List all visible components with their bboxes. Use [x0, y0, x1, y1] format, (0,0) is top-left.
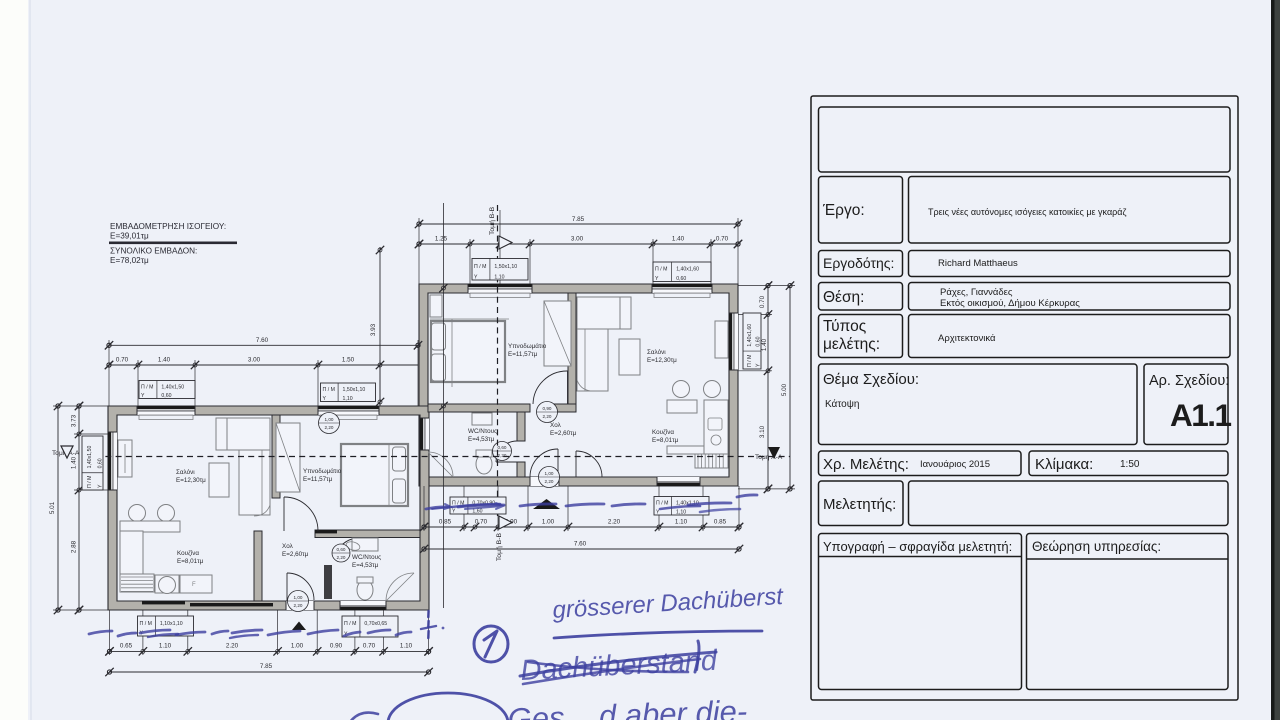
- svg-text:0.70: 0.70: [116, 357, 129, 364]
- svg-text:1.40: 1.40: [672, 236, 685, 243]
- svg-text:Υπογραφή – σφραγίδα μελετητή:: Υπογραφή – σφραγίδα μελετητή:: [823, 539, 1012, 554]
- svg-text:0.70: 0.70: [475, 519, 488, 526]
- svg-text:0,70x0,65: 0,70x0,65: [364, 621, 387, 627]
- svg-text:Έργο:: Έργο:: [822, 202, 865, 219]
- svg-text:Υ: Υ: [756, 363, 762, 367]
- svg-text:Υ: Υ: [655, 276, 659, 282]
- svg-text:Ε=2,60τμ: Ε=2,60τμ: [550, 430, 577, 437]
- svg-text:Υ: Υ: [474, 274, 478, 280]
- svg-text:0.70: 0.70: [363, 643, 376, 650]
- svg-text:1.50: 1.50: [342, 357, 355, 364]
- svg-text:Π / Μ: Π / Μ: [323, 387, 335, 393]
- svg-text:0.85: 0.85: [439, 519, 452, 526]
- svg-text:2,20: 2,20: [337, 555, 346, 560]
- svg-text:Κουζίνα: Κουζίνα: [177, 549, 199, 557]
- svg-text:Ιανουάριος 2015: Ιανουάριος 2015: [920, 459, 990, 470]
- svg-text:Τύπος: Τύπος: [823, 318, 866, 335]
- svg-text:Υ: Υ: [656, 510, 660, 516]
- svg-text:1,10x1,10: 1,10x1,10: [160, 621, 183, 627]
- svg-text:1,00: 1,00: [545, 471, 554, 476]
- svg-text:1,00: 1,00: [294, 595, 303, 600]
- svg-text:1,40x1,60: 1,40x1,60: [676, 267, 699, 273]
- svg-text:Σαλόνι: Σαλόνι: [647, 348, 666, 356]
- svg-text:0,60: 0,60: [337, 547, 346, 552]
- svg-text:2,20: 2,20: [545, 479, 554, 484]
- svg-text:2.88: 2.88: [71, 540, 78, 553]
- svg-text:ΣΥΝΟΛΙΚΟ ΕΜΒΑΔΟΝ:: ΣΥΝΟΛΙΚΟ ΕΜΒΑΔΟΝ:: [110, 247, 197, 256]
- svg-text:2,20: 2,20: [498, 453, 507, 458]
- svg-text:Αρχιτεκτονικά: Αρχιτεκτονικά: [938, 333, 996, 344]
- svg-text:Π / Μ: Π / Μ: [656, 501, 668, 507]
- svg-text:Ε=4,53τμ: Ε=4,53τμ: [468, 436, 495, 443]
- svg-text:1,60: 1,60: [472, 509, 482, 515]
- svg-text:Ε=12,30τμ: Ε=12,30τμ: [176, 477, 206, 484]
- svg-text:Εργοδότης:: Εργοδότης:: [823, 255, 894, 271]
- svg-text:3.93: 3.93: [370, 323, 377, 336]
- svg-text:Τομή B-B: Τομή B-B: [496, 533, 503, 562]
- svg-text:Υ: Υ: [323, 396, 327, 402]
- svg-text:0,60: 0,60: [161, 393, 171, 399]
- svg-text:0.70: 0.70: [716, 236, 729, 243]
- svg-text:1,00: 1,00: [325, 417, 334, 422]
- svg-text:Π / Μ: Π / Μ: [87, 476, 93, 488]
- svg-text:1,50x1,10: 1,50x1,10: [494, 264, 517, 270]
- svg-text:Ε=39,01τμ: Ε=39,01τμ: [110, 232, 149, 241]
- svg-text:Υ: Υ: [452, 509, 456, 515]
- svg-text:Τομή A-A: Τομή A-A: [755, 454, 783, 461]
- svg-text:Κάτοψη: Κάτοψη: [825, 398, 859, 410]
- svg-text:7.85: 7.85: [572, 216, 585, 223]
- svg-text:Π / Μ: Π / Μ: [474, 264, 486, 270]
- svg-text:0.65: 0.65: [120, 643, 133, 650]
- svg-text:3.73: 3.73: [71, 414, 78, 427]
- svg-text:1,40x1,60: 1,40x1,60: [747, 324, 753, 347]
- svg-text:Ε=8,01τμ: Ε=8,01τμ: [652, 437, 679, 444]
- svg-text:Σαλόνι: Σαλόνι: [176, 468, 195, 476]
- svg-text:Θέμα Σχεδίου:: Θέμα Σχεδίου:: [823, 371, 919, 388]
- svg-text:3.00: 3.00: [571, 236, 584, 243]
- svg-text:Ε=11,57τμ: Ε=11,57τμ: [508, 351, 538, 358]
- svg-text:A1.1: A1.1: [1170, 397, 1232, 433]
- svg-text:WC/Ντους: WC/Ντους: [468, 428, 497, 435]
- svg-text:1,10: 1,10: [494, 274, 504, 280]
- svg-text:7.60: 7.60: [256, 337, 269, 344]
- svg-text:WC/Ντους: WC/Ντους: [352, 554, 381, 561]
- svg-text:2,20: 2,20: [294, 603, 303, 608]
- svg-text:7.60: 7.60: [574, 541, 587, 548]
- svg-text:1,50x1,10: 1,50x1,10: [343, 387, 366, 393]
- svg-text:Π / Μ: Π / Μ: [655, 267, 667, 273]
- svg-text:ΕΜΒΑΔΟΜΕΤΡΗΣΗ ΙΣΟΓΕΙΟΥ:: ΕΜΒΑΔΟΜΕΤΡΗΣΗ ΙΣΟΓΕΙΟΥ:: [110, 222, 226, 231]
- svg-text:0,60: 0,60: [676, 276, 686, 282]
- svg-text:Τομή B-B: Τομή B-B: [489, 206, 496, 235]
- svg-text:1.00: 1.00: [291, 643, 304, 650]
- svg-text:0,90: 0,90: [543, 406, 552, 411]
- svg-text:0.70: 0.70: [759, 295, 766, 308]
- svg-text:1.00: 1.00: [542, 519, 555, 526]
- svg-text:F: F: [192, 582, 196, 588]
- svg-text:1.10: 1.10: [400, 643, 413, 650]
- svg-text:Υπνοδωμάτιο: Υπνοδωμάτιο: [303, 467, 342, 475]
- svg-text:Υπνοδωμάτιο: Υπνοδωμάτιο: [508, 342, 547, 350]
- svg-text:1.10: 1.10: [675, 519, 688, 526]
- svg-text:5.00: 5.00: [781, 383, 788, 396]
- svg-text:Ε=12,30τμ: Ε=12,30τμ: [647, 357, 677, 364]
- svg-text:Ε=2,60τμ: Ε=2,60τμ: [282, 551, 309, 558]
- svg-text:2,20: 2,20: [543, 414, 552, 419]
- svg-text:1.10: 1.10: [159, 643, 172, 650]
- svg-text:Π / Μ: Π / Μ: [141, 384, 153, 390]
- svg-text:0,60: 0,60: [97, 458, 103, 468]
- svg-text:Ε=11,57τμ: Ε=11,57τμ: [303, 476, 333, 483]
- svg-text:0.85: 0.85: [714, 519, 727, 526]
- svg-text:Τρεις νέες αυτόνομες ισόγειες: Τρεις νέες αυτόνομες ισόγειες κατοικίες …: [928, 207, 1126, 217]
- svg-text:Υ: Υ: [141, 393, 145, 399]
- svg-text:Richard Matthaeus: Richard Matthaeus: [938, 258, 1018, 269]
- svg-text:0,60: 0,60: [756, 336, 762, 346]
- svg-text:1,10: 1,10: [676, 510, 686, 516]
- svg-text:Μελετητής:: Μελετητής:: [823, 496, 896, 513]
- svg-text:Κλίμακα:: Κλίμακα:: [1035, 456, 1093, 473]
- svg-text:3.10: 3.10: [759, 425, 766, 438]
- svg-text:Θέση:: Θέση:: [823, 289, 864, 306]
- svg-text:Εκτός οικισμού, Δήμου Κέρκυρας: Εκτός οικισμού, Δήμου Κέρκυρας: [940, 298, 1080, 309]
- svg-text:0,60: 0,60: [498, 445, 507, 450]
- svg-text:Χολ: Χολ: [550, 422, 562, 429]
- svg-text:1.40: 1.40: [158, 357, 171, 364]
- svg-text:1.40: 1.40: [761, 338, 768, 351]
- svg-text:Π / Μ: Π / Μ: [140, 621, 152, 627]
- svg-text:1,40x1,50: 1,40x1,50: [87, 445, 93, 468]
- svg-text:2.20: 2.20: [226, 643, 239, 650]
- svg-text:Χολ: Χολ: [282, 543, 294, 550]
- svg-text:Χρ. Μελέτης:: Χρ. Μελέτης:: [823, 456, 909, 473]
- svg-text:Θεώρηση υπηρεσίας:: Θεώρηση υπηρεσίας:: [1032, 539, 1161, 554]
- svg-text:2,20: 2,20: [325, 425, 334, 430]
- svg-text:1.25: 1.25: [435, 236, 448, 243]
- svg-text:Υ: Υ: [97, 484, 103, 488]
- svg-text:1,10: 1,10: [343, 396, 353, 402]
- svg-text:Κουζίνα: Κουζίνα: [652, 428, 674, 436]
- svg-text:Ε=4,53τμ: Ε=4,53τμ: [352, 562, 379, 569]
- svg-text:1,40x1,50: 1,40x1,50: [161, 384, 184, 390]
- svg-text:7.85: 7.85: [260, 663, 273, 670]
- svg-text:1.40: 1.40: [71, 456, 78, 469]
- svg-text:Π / Μ: Π / Μ: [747, 355, 753, 367]
- svg-text:1:50: 1:50: [1120, 459, 1140, 470]
- svg-text:Π / Μ: Π / Μ: [344, 621, 356, 627]
- svg-text:0.90: 0.90: [330, 643, 343, 650]
- svg-text:5.01: 5.01: [49, 501, 56, 514]
- svg-text:Ε=78,02τμ: Ε=78,02τμ: [110, 256, 149, 265]
- svg-text:2.20: 2.20: [608, 519, 621, 526]
- svg-text:3.00: 3.00: [248, 357, 261, 364]
- svg-text:Ράχες, Γιαννάδες: Ράχες, Γιαννάδες: [940, 287, 1013, 298]
- svg-text:Ε=8,01τμ: Ε=8,01τμ: [177, 558, 204, 565]
- svg-text:Αρ. Σχεδίου:: Αρ. Σχεδίου:: [1149, 373, 1229, 389]
- svg-text:μελέτης:: μελέτης:: [823, 336, 880, 353]
